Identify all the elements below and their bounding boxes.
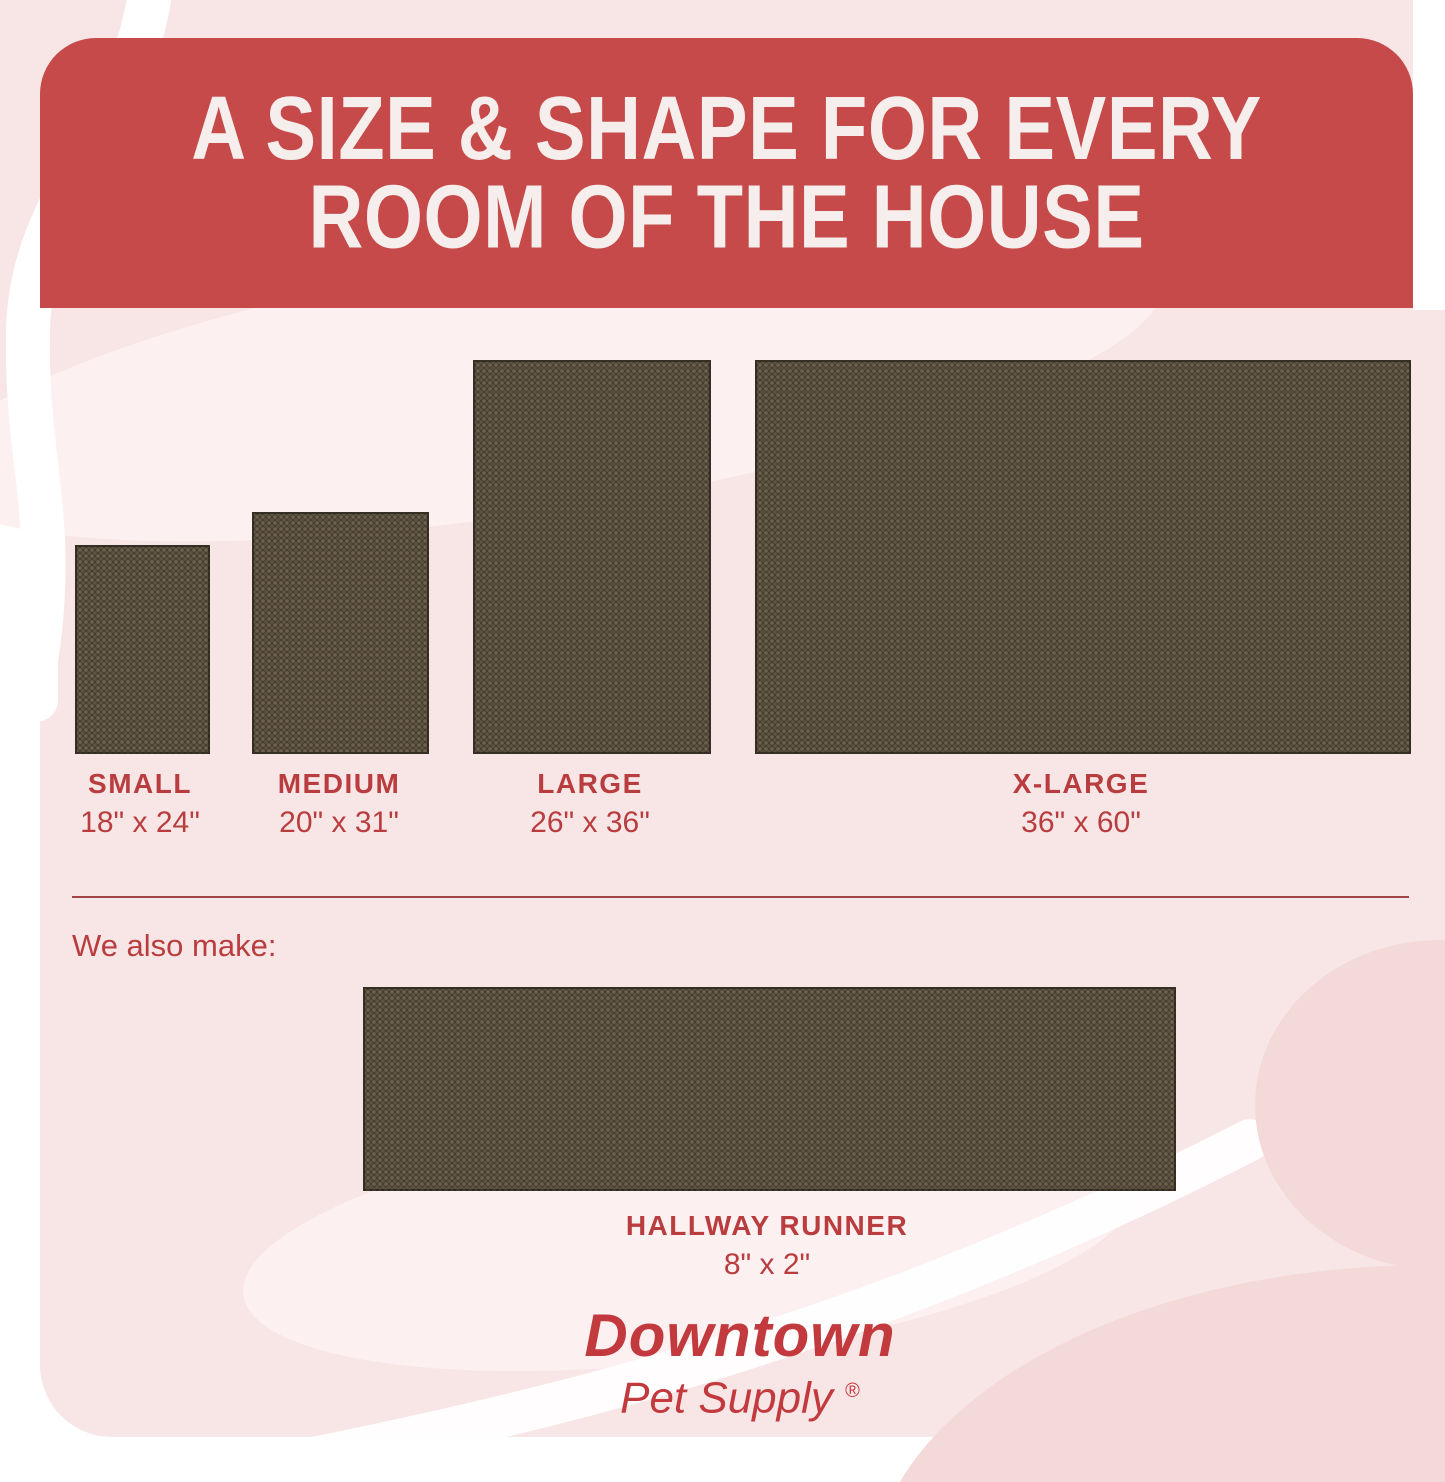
rug-swatch-hallway-runner [363, 987, 1176, 1191]
size-name-large: LARGE [440, 768, 740, 800]
brand-subtitle-text: Pet Supply [620, 1374, 833, 1423]
also-make-label: We also make: [72, 928, 276, 964]
rug-swatch-large [473, 360, 711, 754]
section-divider [72, 896, 1409, 898]
registered-trademark-icon: ® [845, 1380, 860, 1402]
header-banner: A SIZE & SHAPE FOR EVERY ROOM OF THE HOU… [40, 38, 1413, 308]
banner-title-line-1: A SIZE & SHAPE FOR EVERY [191, 85, 1262, 173]
runner-dims: 8" x 2" [617, 1248, 917, 1282]
brand-subtitle: Pet Supply ® [440, 1368, 1040, 1422]
size-dims-xlarge: 36" x 60" [931, 806, 1231, 840]
size-chart-infographic: A SIZE & SHAPE FOR EVERY ROOM OF THE HOU… [0, 0, 1445, 1482]
rug-swatch-medium [252, 512, 429, 754]
runner-name: HALLWAY RUNNER [617, 1210, 917, 1242]
rug-swatch-small [75, 545, 210, 754]
rug-swatch-xlarge [755, 360, 1411, 754]
banner-title: A SIZE & SHAPE FOR EVERY ROOM OF THE HOU… [191, 85, 1262, 262]
brand-name: Downtown [440, 1306, 1040, 1366]
banner-title-line-2: ROOM OF THE HOUSE [191, 173, 1262, 262]
brand-logo: Downtown Pet Supply ® [440, 1306, 1040, 1422]
size-name-xlarge: X-LARGE [931, 768, 1231, 800]
size-dims-large: 26" x 36" [440, 806, 740, 840]
